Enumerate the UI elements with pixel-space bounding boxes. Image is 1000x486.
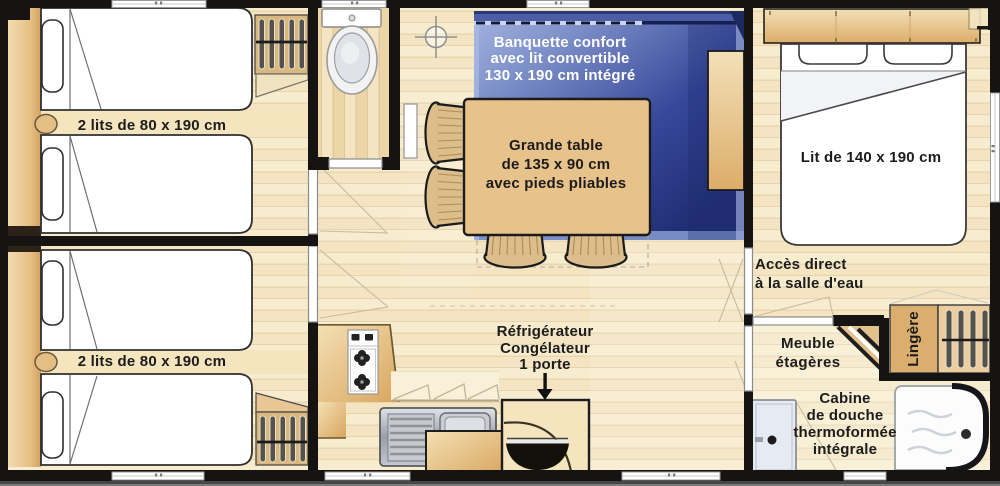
svg-text:à la salle d'eau: à la salle d'eau [755, 275, 864, 292]
svg-text:Cabine: Cabine [819, 390, 870, 407]
svg-text:de douche: de douche [807, 407, 884, 424]
svg-text:de 135 x 90 cm: de 135 x 90 cm [502, 156, 611, 173]
svg-text:Meuble: Meuble [781, 335, 835, 352]
svg-text:2 lits de 80 x 190 cm: 2 lits de 80 x 190 cm [78, 117, 226, 134]
svg-text:avec pieds pliables: avec pieds pliables [486, 175, 627, 192]
svg-text:avec lit convertible: avec lit convertible [490, 50, 629, 67]
svg-text:130 x 190 cm intégré: 130 x 190 cm intégré [485, 67, 636, 84]
svg-text:Congélateur: Congélateur [500, 340, 590, 357]
svg-text:2 lits de 80 x 190 cm: 2 lits de 80 x 190 cm [78, 353, 226, 370]
svg-text:Réfrigérateur: Réfrigérateur [497, 323, 594, 340]
svg-text:Lingère: Lingère [905, 311, 922, 367]
svg-text:étagères: étagères [776, 354, 841, 371]
svg-text:1 porte: 1 porte [519, 356, 570, 373]
svg-text:intégrale: intégrale [813, 441, 877, 458]
svg-text:Grande table: Grande table [509, 137, 603, 154]
svg-text:Lit de 140 x 190 cm: Lit de 140 x 190 cm [801, 149, 942, 166]
svg-text:Accès direct: Accès direct [755, 256, 847, 273]
svg-text:Banquette confort: Banquette confort [494, 34, 627, 51]
svg-text:thermoformée: thermoformée [793, 424, 896, 441]
